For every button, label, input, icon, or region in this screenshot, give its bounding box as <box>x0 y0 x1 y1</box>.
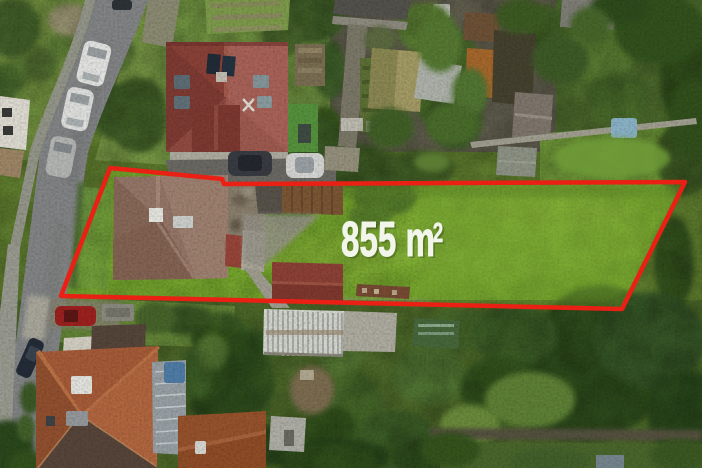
svg-text:855 m: 855 m <box>341 211 435 266</box>
svg-text:2: 2 <box>433 217 443 249</box>
